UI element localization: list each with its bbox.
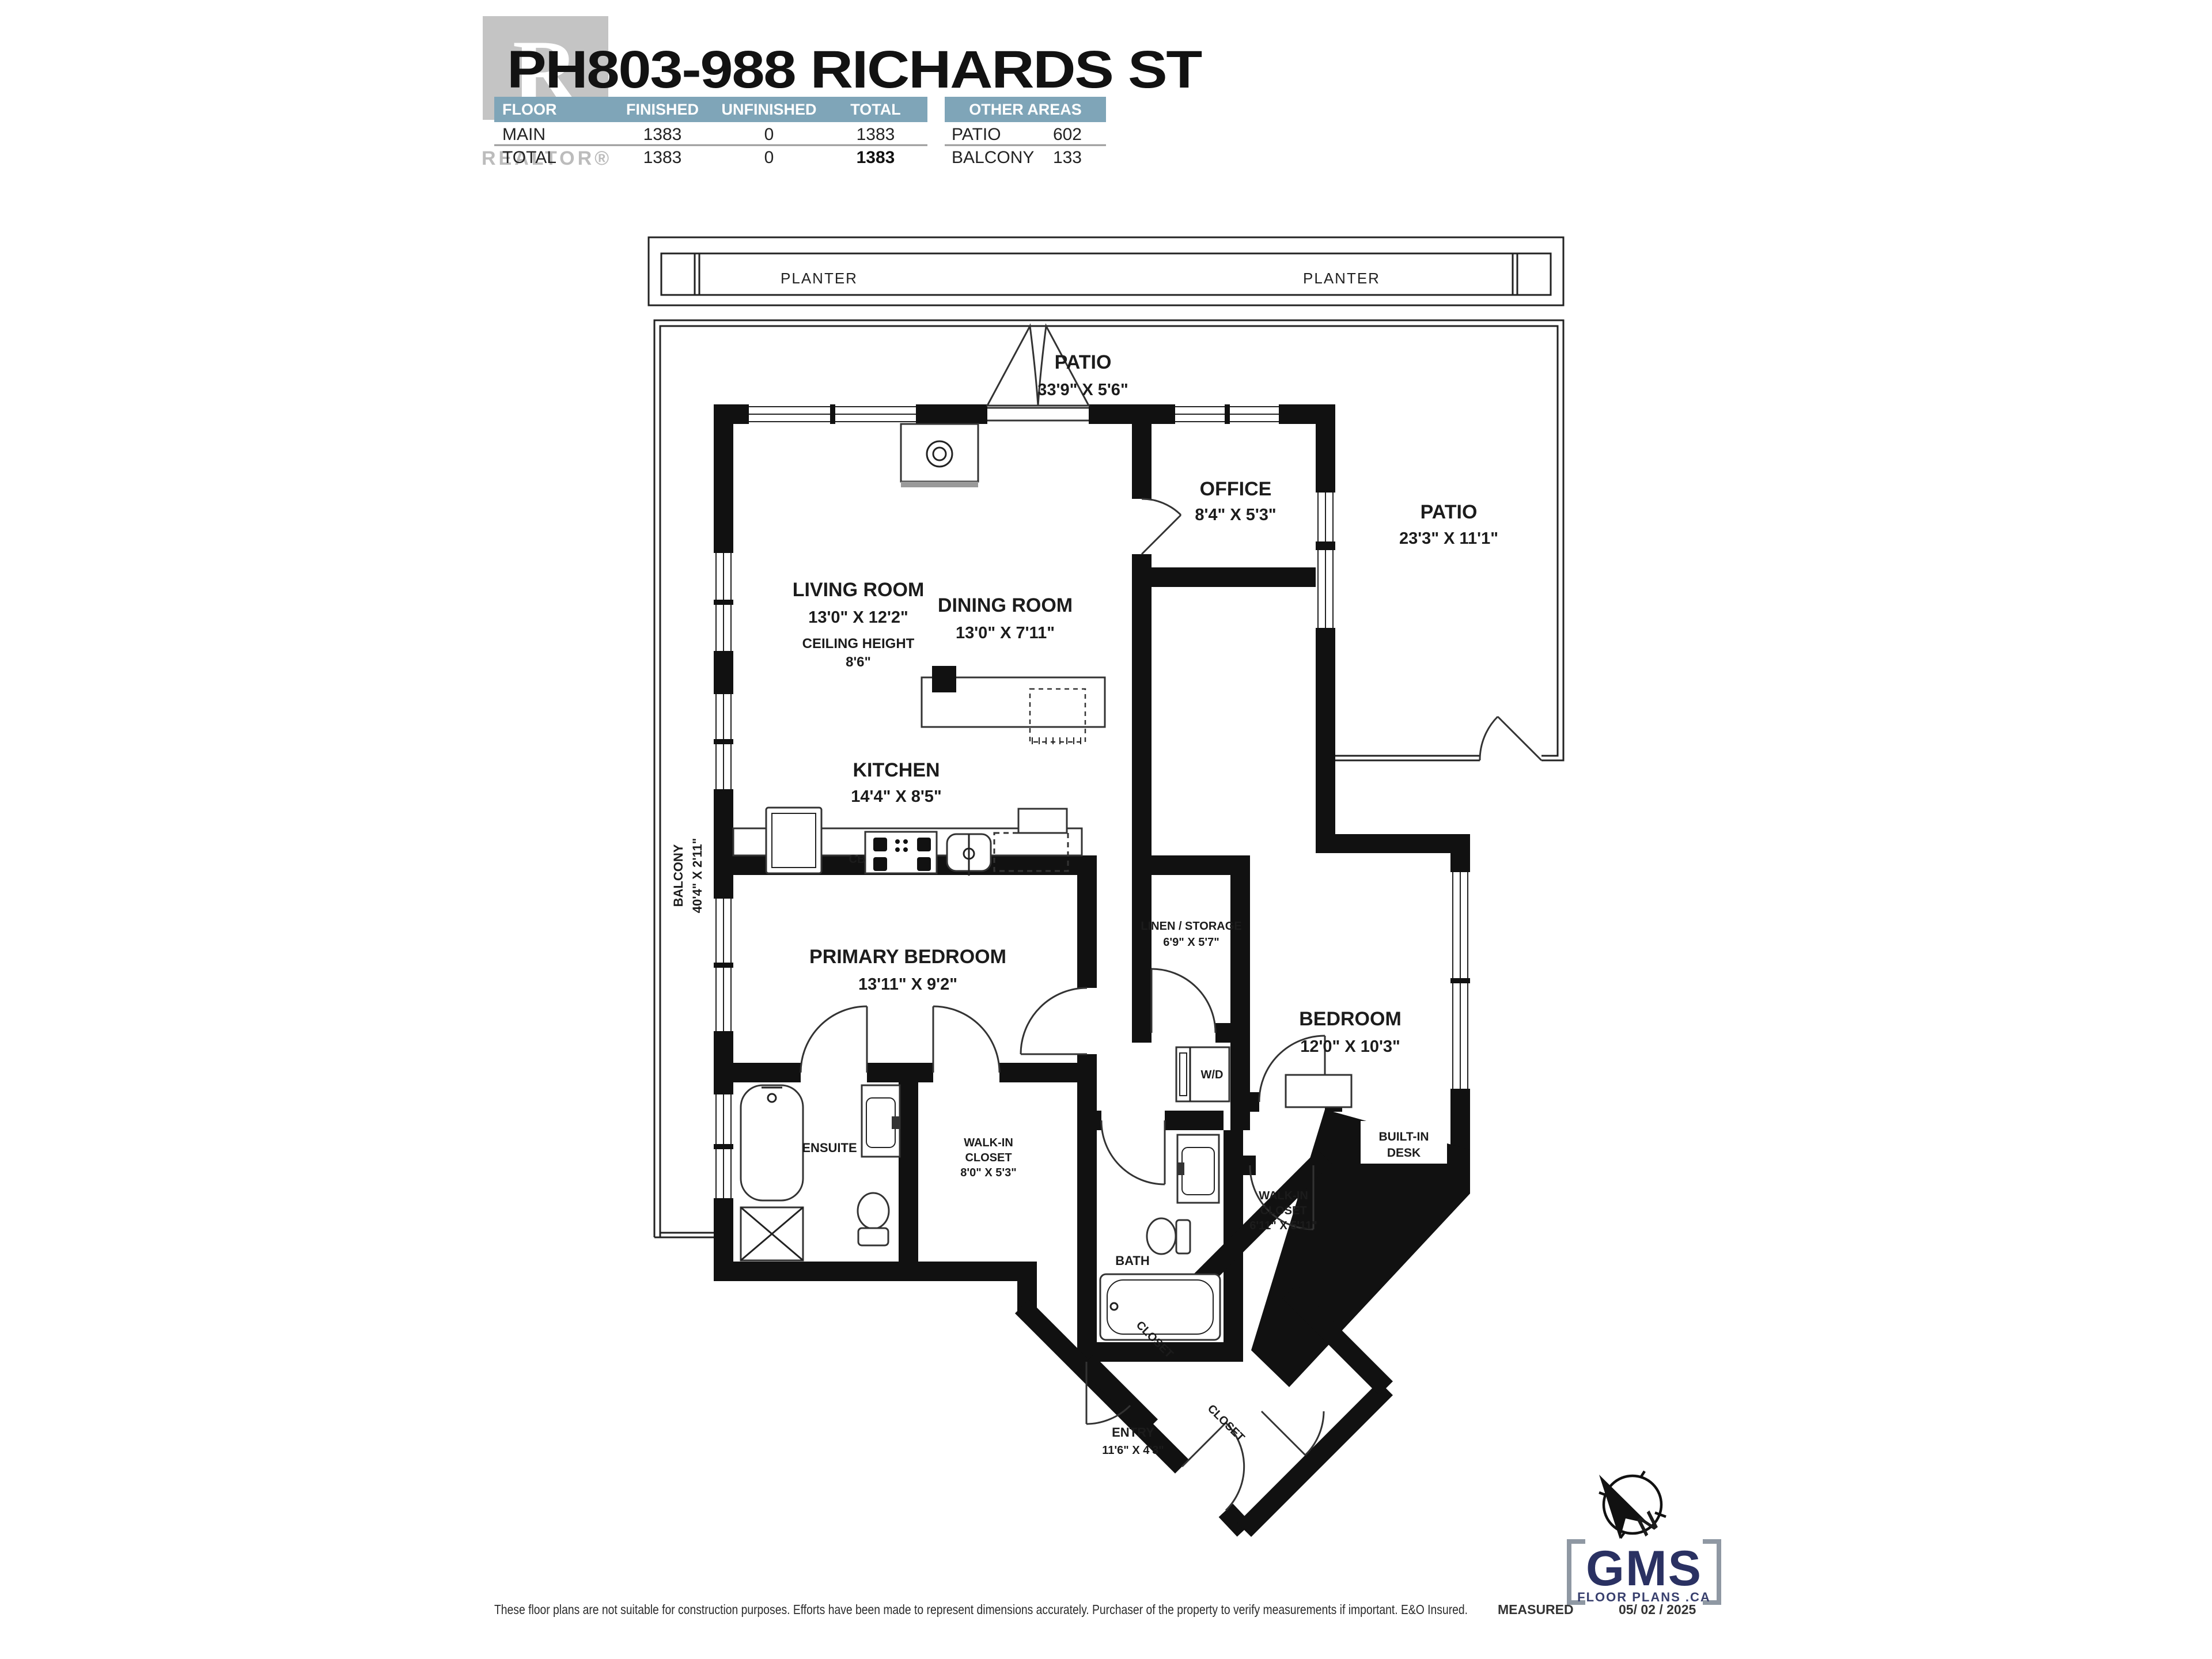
office-label: OFFICE xyxy=(1200,478,1272,500)
wic1-label-2: CLOSET xyxy=(965,1152,1012,1164)
ensuite-label: ENSUITE xyxy=(802,1141,857,1155)
gms-logo: GMS FLOOR PLANS .CA xyxy=(1569,1541,1719,1604)
dining-room-dims: 13'0" X 7'11" xyxy=(956,624,1055,642)
dining-room-label: DINING ROOM xyxy=(938,594,1073,616)
balcony-dims: 40'4" X 2'11" xyxy=(690,838,704,913)
bedroom-dims: 12'0" X 10'3" xyxy=(1300,1037,1400,1056)
kitchen-label: KITCHEN xyxy=(853,759,940,781)
row-patio-name: PATIO xyxy=(952,125,1001,144)
primary-bedroom-label: PRIMARY BEDROOM xyxy=(809,946,1006,968)
patio-top-label: PATIO xyxy=(1055,351,1112,373)
row-main-floor: MAIN xyxy=(502,125,546,144)
planter-right-label: PLANTER xyxy=(1303,270,1380,287)
col-total: TOTAL xyxy=(850,101,901,118)
wic2-dims: 6'11" X 5'11" xyxy=(1249,1219,1317,1232)
wd-label: W/D xyxy=(1201,1069,1224,1081)
compass-icon: N xyxy=(1599,1471,1666,1541)
row-patio-value: 602 xyxy=(1053,125,1082,144)
office-dims: 8'4" X 5'3" xyxy=(1195,506,1276,524)
bath-label: BATH xyxy=(1115,1253,1149,1268)
desk-label-2: DESK xyxy=(1387,1146,1421,1160)
row-main-finished: 1383 xyxy=(643,125,682,144)
patio-right-dims: 23'3" X 11'1" xyxy=(1399,529,1498,548)
row-main-unfinished: 0 xyxy=(764,125,774,144)
col-unfinished: UNFINISHED xyxy=(721,101,816,118)
row-total-total: 1383 xyxy=(857,148,895,167)
bath-fixtures xyxy=(1100,1135,1220,1340)
row-total-unfinished: 0 xyxy=(764,148,774,167)
row-balcony-name: BALCONY xyxy=(952,148,1034,167)
living-room-label: LIVING ROOM xyxy=(793,579,925,601)
bedroom-label: BEDROOM xyxy=(1299,1008,1402,1030)
ceiling-height-value: 8'6" xyxy=(846,654,871,670)
fireplace xyxy=(901,424,978,487)
footer: These floor plans are not suitable for c… xyxy=(494,1471,1719,1617)
patio-top-dims: 33'9" X 5'6" xyxy=(1037,381,1128,399)
wic1-dims: 8'0" X 5'3" xyxy=(960,1166,1016,1179)
linen-label: LINEN / STORAGE xyxy=(1141,920,1241,933)
wic2-label-2: CLOSET xyxy=(1260,1205,1306,1217)
balcony-label: BALCONY xyxy=(671,844,685,907)
entry-dims: 11'6" X 4'3" xyxy=(1102,1444,1164,1457)
desk-label-1: BUILT-IN xyxy=(1378,1130,1429,1143)
row-balcony-value: 133 xyxy=(1053,148,1082,167)
kitchen-island xyxy=(922,666,1105,744)
cb-label: CB xyxy=(849,853,866,866)
gms-sub: FLOOR PLANS .CA xyxy=(1577,1590,1711,1604)
patio-gate-door xyxy=(1480,717,1541,760)
linen-dims: 6'9" X 5'7" xyxy=(1163,936,1219,949)
col-finished: FINISHED xyxy=(626,101,699,118)
entry-label: ENTRY xyxy=(1112,1425,1154,1440)
other-areas-title: OTHER AREAS xyxy=(969,101,1082,118)
ensuite-fixtures xyxy=(741,1085,900,1260)
other-areas-table: OTHER AREAS PATIO 602 BALCONY 133 xyxy=(945,97,1106,167)
col-floor: FLOOR xyxy=(502,101,557,118)
row-total-finished: 1383 xyxy=(643,148,682,167)
kitchen-dims: 14'4" X 8'5" xyxy=(851,787,941,806)
row-total-floor: TOTAL xyxy=(502,148,556,167)
primary-bedroom-dims: 13'11" X 9'2" xyxy=(858,975,957,994)
ceiling-height-label: CEILING HEIGHT xyxy=(802,636,915,652)
bedroom-dresser xyxy=(1286,1075,1351,1107)
wic1-label-1: WALK-IN xyxy=(964,1137,1013,1149)
gms-name: GMS xyxy=(1586,1541,1702,1596)
disclaimer-text: These floor plans are not suitable for c… xyxy=(494,1602,1468,1617)
walls-layer xyxy=(714,404,1470,1387)
row-main-total: 1383 xyxy=(857,125,895,144)
floor-plan-sheet: R REALTOR® PH803-988 RICHARDS ST FLOOR F… xyxy=(0,0,2212,1659)
planter-left-label: PLANTER xyxy=(781,270,858,287)
patio-right-label: PATIO xyxy=(1421,501,1478,523)
measured-label: MEASURED xyxy=(1498,1602,1574,1617)
living-room-dims: 13'0" X 12'2" xyxy=(808,608,908,627)
page-title: PH803-988 RICHARDS ST xyxy=(507,40,1202,99)
wic2-label-1: WALK-IN xyxy=(1259,1190,1308,1202)
